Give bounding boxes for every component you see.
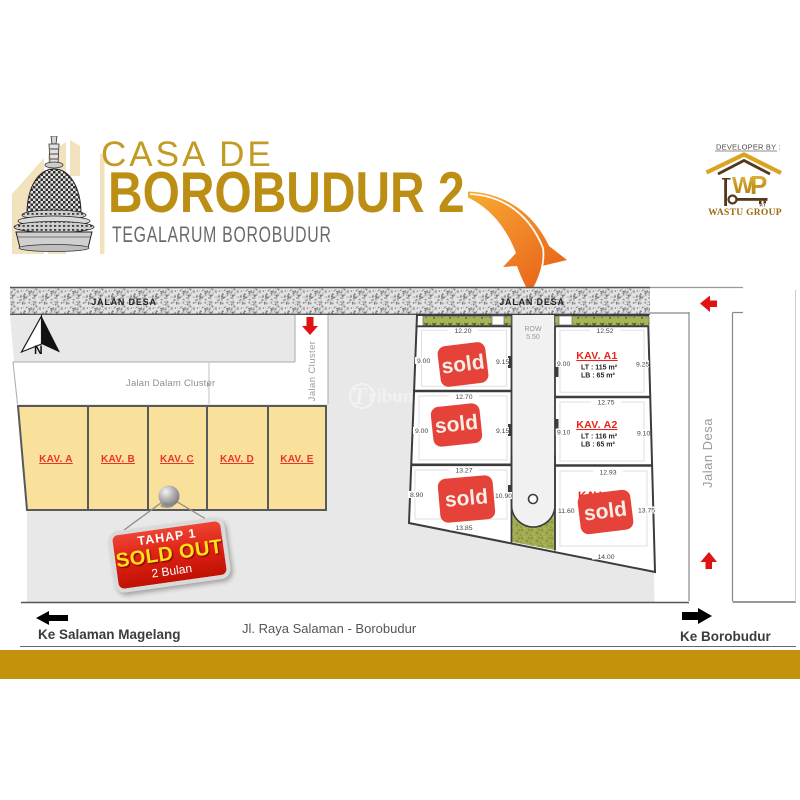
svg-text:JALAN DESA: JALAN DESA <box>91 297 157 307</box>
svg-text:13.27: 13.27 <box>455 468 472 475</box>
svg-text:9.10: 9.10 <box>557 430 570 437</box>
svg-text:13.75: 13.75 <box>638 508 655 515</box>
svg-text:LT : 116 m²: LT : 116 m² <box>581 434 618 441</box>
svg-text:11.60: 11.60 <box>558 508 575 515</box>
svg-text:KAV. D: KAV. D <box>220 454 254 465</box>
svg-text:14.00: 14.00 <box>597 554 614 561</box>
svg-text:9.10: 9.10 <box>637 431 650 438</box>
svg-text:KAV. B: KAV. B <box>101 454 135 465</box>
svg-text:9.00: 9.00 <box>417 358 430 365</box>
svg-text:12.20: 12.20 <box>454 328 471 335</box>
svg-text:WASTU GROUP: WASTU GROUP <box>708 208 782 218</box>
svg-text:9.15: 9.15 <box>496 359 509 366</box>
svg-text:9.00: 9.00 <box>557 361 570 368</box>
svg-text:P: P <box>750 170 767 200</box>
svg-text:KAV. A2: KAV. A2 <box>576 419 617 431</box>
svg-text:N: N <box>34 343 43 357</box>
svg-text:13.85: 13.85 <box>455 525 472 532</box>
svg-text:KAV. E: KAV. E <box>280 454 314 465</box>
svg-text:9.00: 9.00 <box>415 428 428 435</box>
svg-text:Jalan Cluster: Jalan Cluster <box>307 341 318 402</box>
svg-text:KAV. C: KAV. C <box>160 454 194 465</box>
svg-text:T: T <box>352 384 368 410</box>
svg-text:LB : 65 m²: LB : 65 m² <box>581 442 616 449</box>
svg-text:JALAN DESA: JALAN DESA <box>499 297 565 307</box>
svg-text:9.15: 9.15 <box>496 428 509 435</box>
svg-text:8.90: 8.90 <box>410 492 423 499</box>
svg-text:12.70: 12.70 <box>455 394 472 401</box>
svg-text:12.75: 12.75 <box>597 400 614 407</box>
svg-text:LB : 65 m²: LB : 65 m² <box>581 373 616 380</box>
svg-text:Jalan Desa: Jalan Desa <box>700 418 715 488</box>
svg-text:Jalan Dalam Cluster: Jalan Dalam Cluster <box>126 378 215 389</box>
svg-text:LT : 115 m²: LT : 115 m² <box>581 365 618 372</box>
svg-text:KAV. A1: KAV. A1 <box>576 350 617 362</box>
svg-text:5.50: 5.50 <box>526 334 540 341</box>
svg-text:KAV. A: KAV. A <box>39 454 73 465</box>
svg-text:ROW: ROW <box>524 326 542 333</box>
svg-text:10.90: 10.90 <box>495 493 512 500</box>
svg-text:9.25: 9.25 <box>636 362 649 369</box>
svg-text:12.93: 12.93 <box>599 470 616 477</box>
svg-text:12.52: 12.52 <box>596 328 613 335</box>
svg-text:DEVELOPER BY :: DEVELOPER BY : <box>716 143 781 152</box>
svg-text:P.T: P.T <box>760 203 767 208</box>
